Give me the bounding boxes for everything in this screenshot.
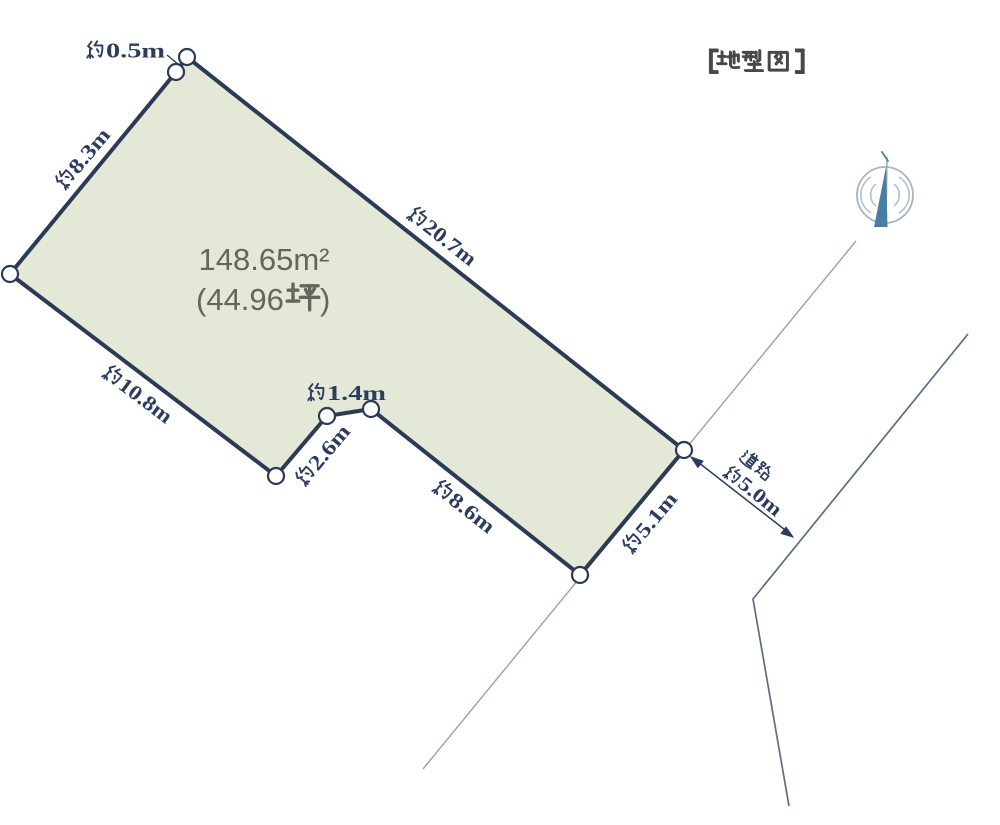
svg-text:1.4m: 1.4m xyxy=(327,381,387,405)
svg-text:(44.96: (44.96 xyxy=(196,282,284,317)
svg-text:0.5m: 0.5m xyxy=(106,39,166,63)
svg-text:148.65m²: 148.65m² xyxy=(199,242,330,277)
svg-text:): ) xyxy=(320,282,330,317)
